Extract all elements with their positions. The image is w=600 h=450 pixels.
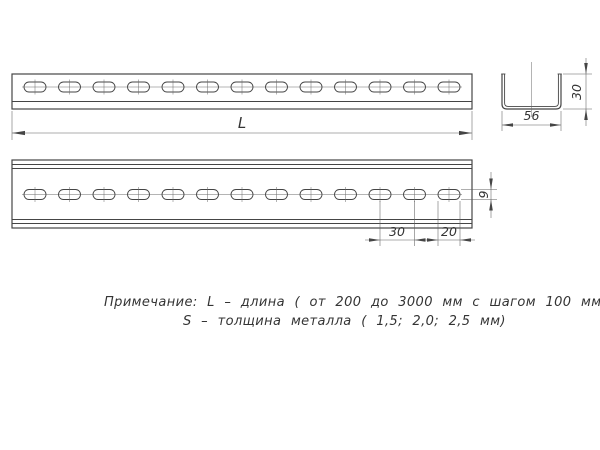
front-view: L: [12, 74, 472, 140]
dim-arrow: [489, 200, 493, 211]
dim-arrow: [502, 123, 513, 126]
dim-label-20: 20: [441, 224, 457, 239]
dim-label-9: 9: [476, 190, 491, 198]
technical-drawing: L 56 30: [0, 0, 600, 450]
dim-label-30-height: 30: [569, 84, 584, 100]
dim-arrow: [459, 131, 472, 135]
dim-arrow: [12, 131, 25, 135]
section-view: 56 30: [501, 58, 592, 131]
dim-section-height: 30: [563, 58, 592, 126]
dim-arrow: [550, 123, 561, 126]
dim-label-L: L: [238, 114, 246, 132]
dim-arrow: [415, 238, 426, 242]
note-line-2: S – толщина металла ( 1,5; 2,0; 2,5 мм): [183, 314, 506, 329]
dim-section-width: 56: [502, 108, 561, 131]
dim-arrow: [584, 109, 588, 120]
plan-view: 30 20 9: [12, 160, 497, 246]
dim-hole-width: 9: [461, 172, 497, 218]
dim-arrow: [427, 238, 438, 242]
dim-label-56: 56: [524, 108, 540, 123]
dim-arrow: [460, 238, 471, 242]
dim-arrow: [584, 63, 588, 74]
dim-arrow: [489, 179, 493, 190]
dim-length-L: L: [12, 111, 472, 140]
note-line-1: Примечание: L – длина ( от 200 до 3000 м…: [104, 295, 600, 310]
dim-arrow: [369, 238, 380, 242]
dim-label-30-pitch: 30: [389, 224, 405, 239]
